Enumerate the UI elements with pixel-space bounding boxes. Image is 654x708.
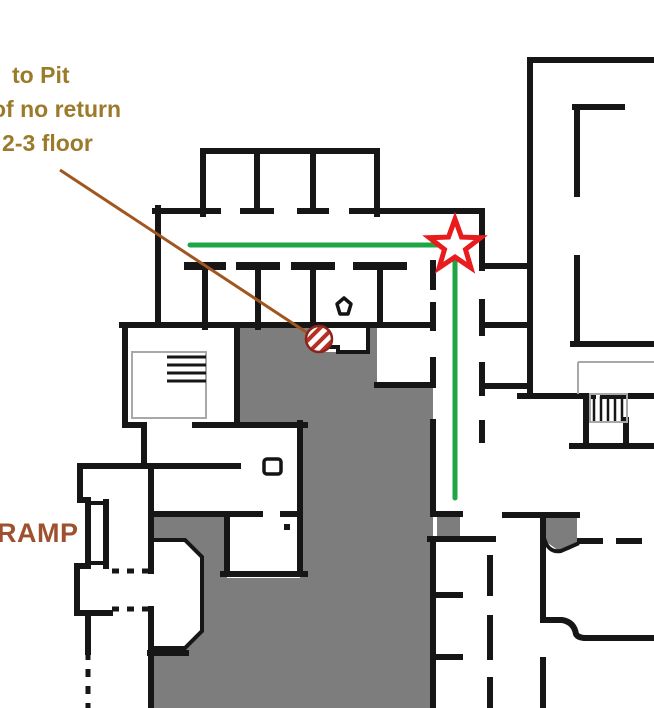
label-2-3-floor: : 2-3 floor — [0, 130, 93, 157]
label-to-pit: to Pit — [12, 62, 70, 89]
label-ramp: RAMP — [0, 518, 79, 549]
pointer-line — [60, 170, 312, 336]
stairs-right — [578, 362, 654, 422]
platform-octagon — [150, 540, 202, 653]
small-box-icon — [264, 459, 281, 474]
small-dot — [284, 524, 290, 530]
label-of-no-return: of no return — [0, 96, 121, 123]
floor-plan-map: to Pit of no return : 2-3 floor RAMP — [0, 0, 654, 708]
item-pentagon-icon — [337, 298, 351, 314]
stairs-left — [132, 352, 206, 418]
